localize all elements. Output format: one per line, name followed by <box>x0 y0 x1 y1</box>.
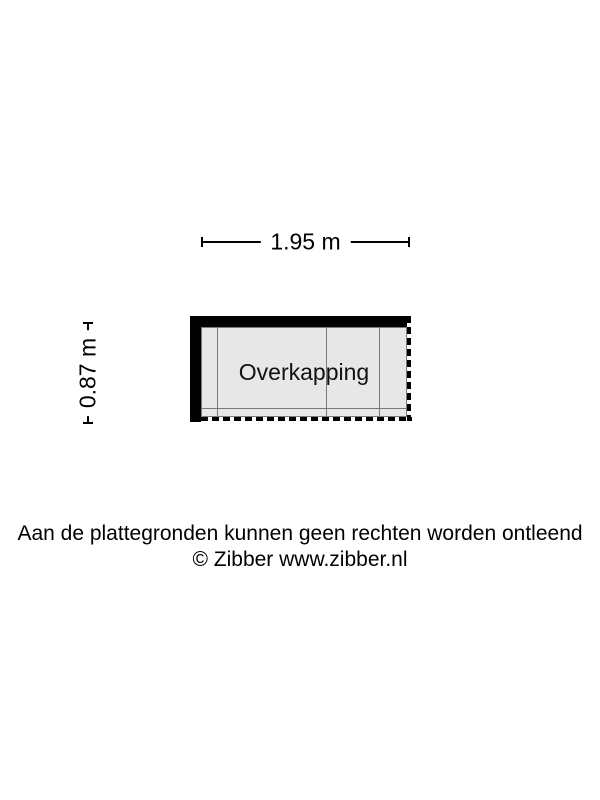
wall-left <box>190 316 201 422</box>
footer: Aan de plattegronden kunnen geen rechten… <box>0 521 600 573</box>
height-dimension-label: 0.87 m <box>75 330 102 416</box>
disclaimer-text: Aan de plattegronden kunnen geen rechten… <box>0 521 600 547</box>
roof-panel-line-3 <box>379 328 380 416</box>
height-dimension-tick-top <box>83 322 93 324</box>
height-dimension-tick-bottom <box>83 422 93 424</box>
open-side-right-dashed <box>407 316 411 421</box>
room-label: Overkapping <box>239 359 369 386</box>
width-dimension: 1.95 m <box>201 232 410 252</box>
width-dimension-tick-right <box>408 237 410 247</box>
roof-panel-line-horizontal <box>202 408 406 409</box>
floorplan-drawing: Overkapping <box>190 316 412 422</box>
copyright-text: © Zibber www.zibber.nl <box>0 547 600 573</box>
open-side-bottom-dashed <box>201 417 412 421</box>
width-dimension-tick-left <box>201 237 203 247</box>
wall-top <box>190 316 407 327</box>
floorplan-page: 1.95 m 0.87 m Overkapping Aan de platteg… <box>0 0 600 800</box>
room-overkapping: Overkapping <box>201 327 407 417</box>
roof-panel-line-1 <box>217 328 218 416</box>
width-dimension-label: 1.95 m <box>260 229 350 256</box>
height-dimension: 0.87 m <box>78 322 98 424</box>
